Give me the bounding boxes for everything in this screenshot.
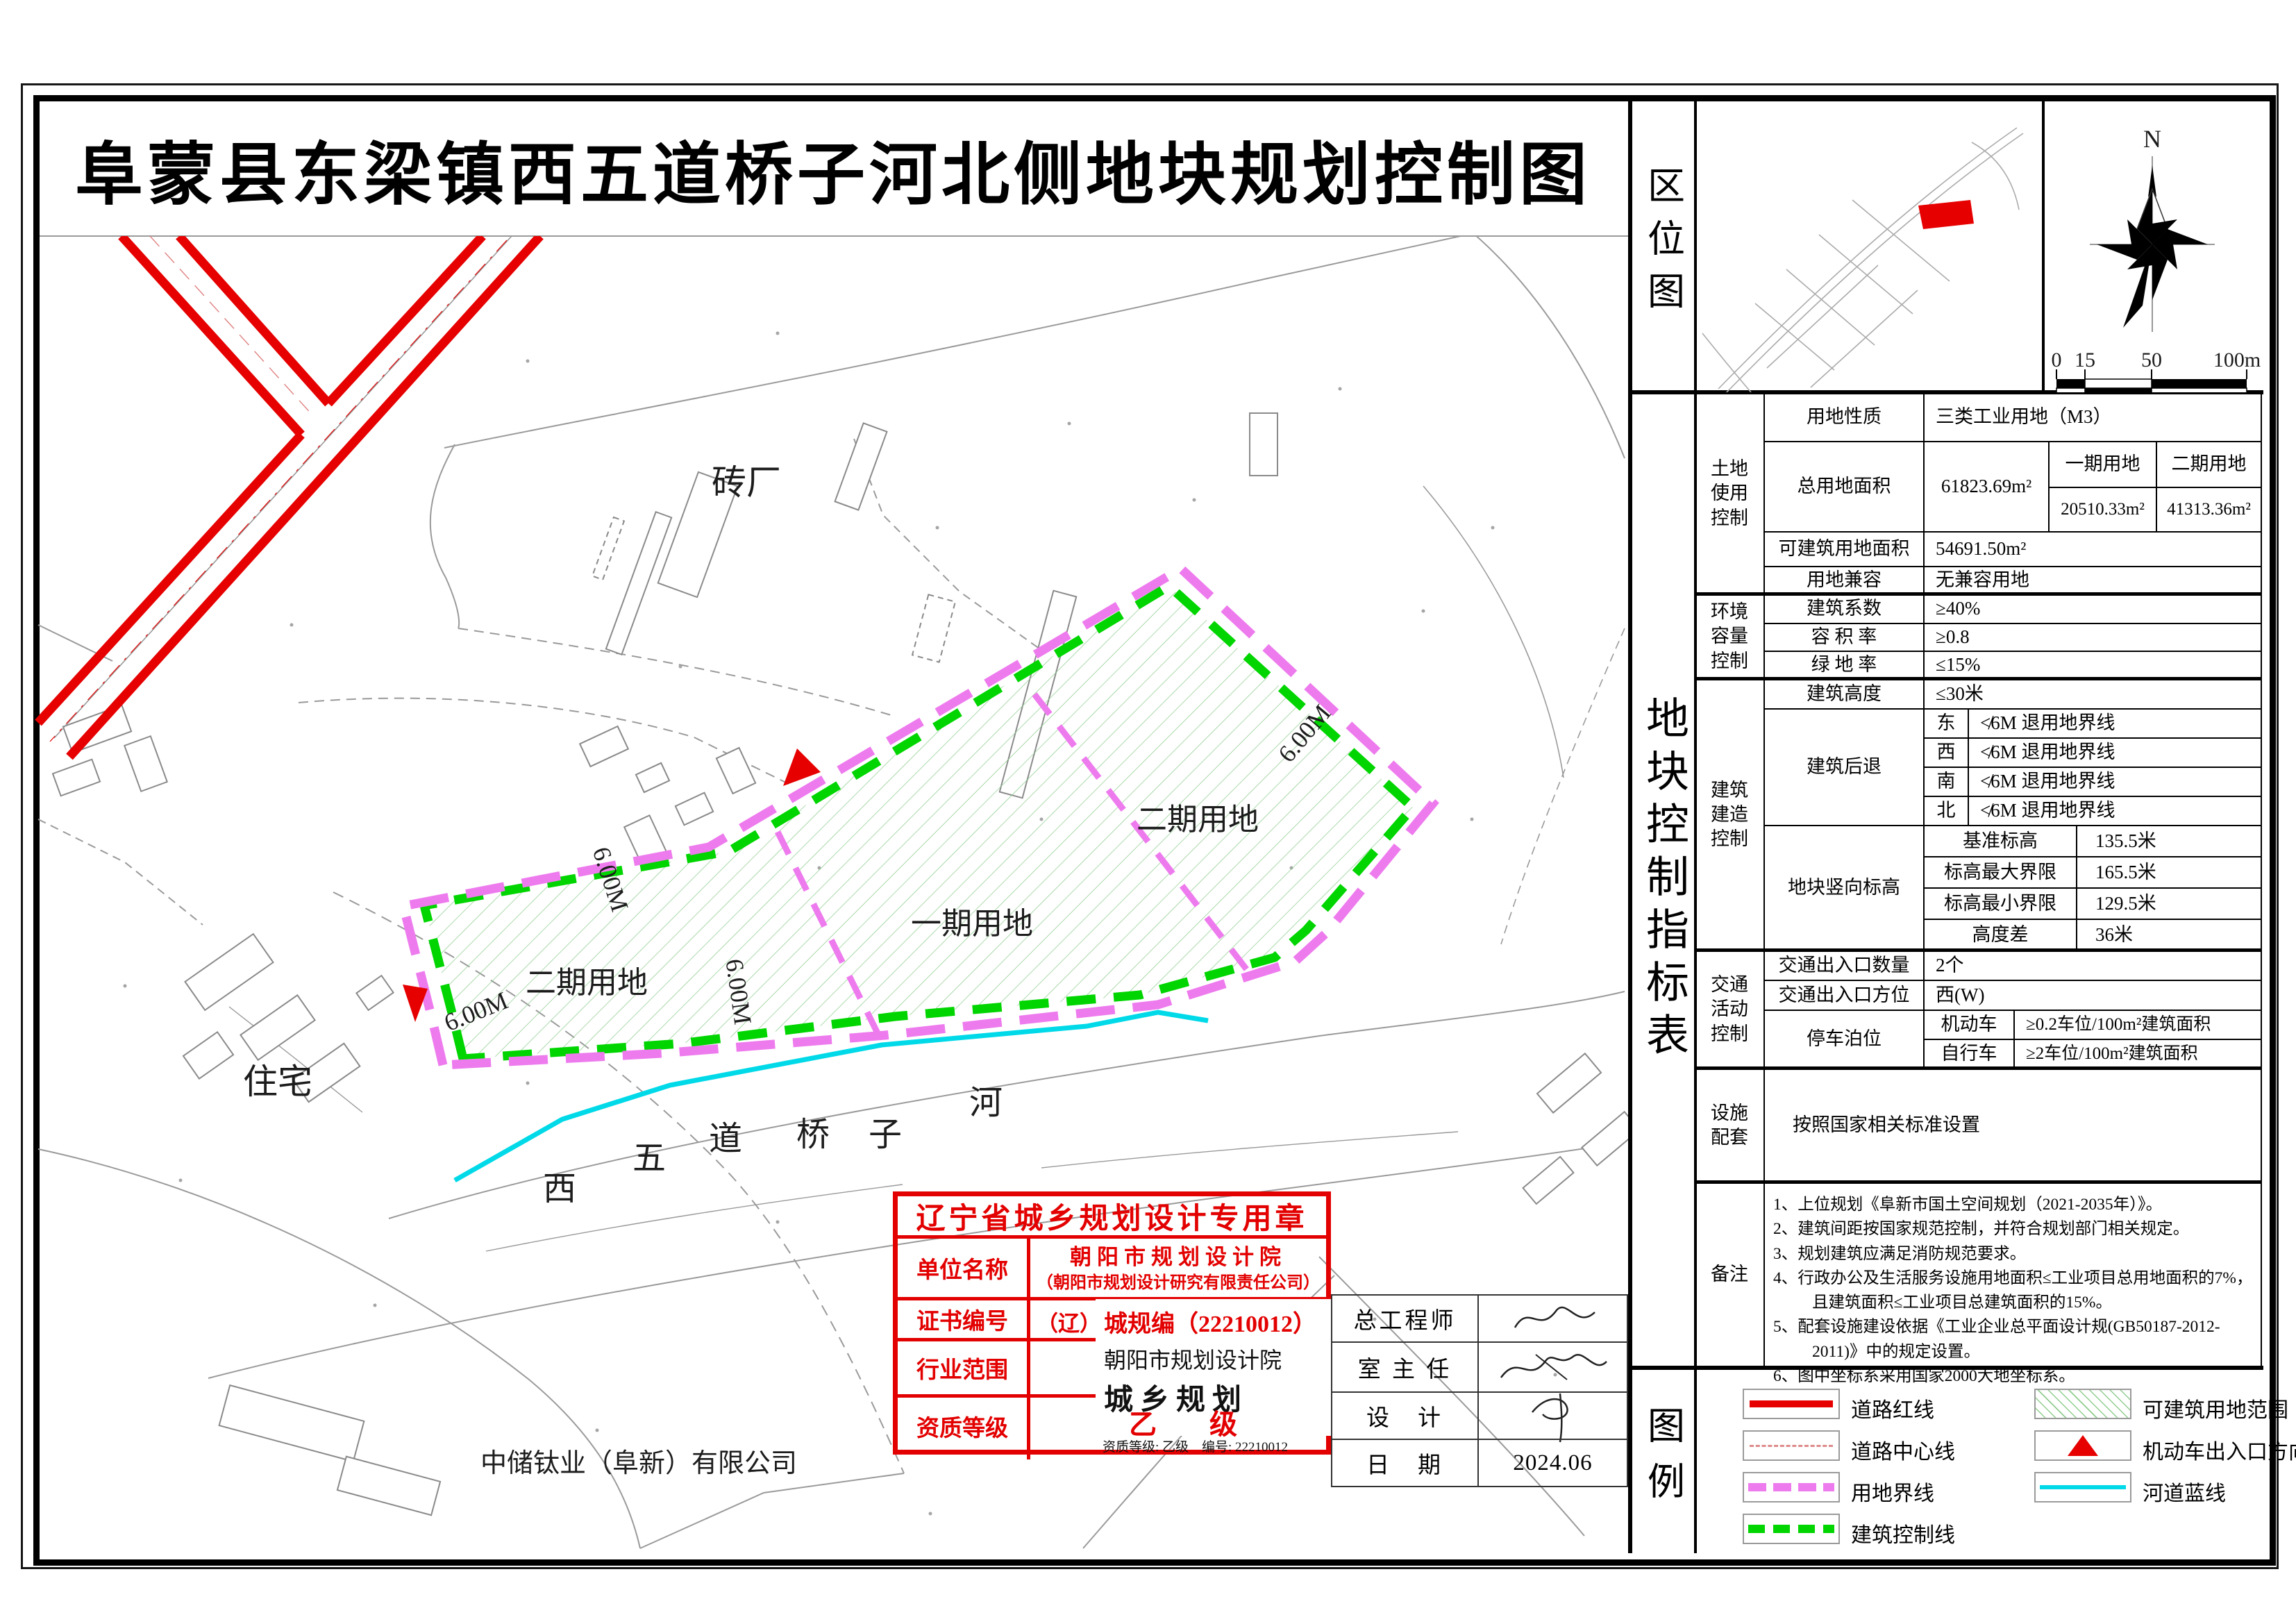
signature-1 bbox=[1501, 1300, 1605, 1337]
attr-entry-count: 交通出入口数量 bbox=[1763, 950, 1925, 981]
group-notes: 备注 bbox=[1694, 1182, 1765, 1368]
phase1-label: 一期用地 bbox=[911, 907, 1033, 941]
location-parcel bbox=[1918, 200, 1974, 229]
value-phase1: 20510.33m² bbox=[2048, 487, 2157, 533]
note-2: 2、建筑间距按国家规范控制，并符合规划部门相关规定。 bbox=[1773, 1217, 2254, 1241]
chief-engineer-signature bbox=[1477, 1294, 1628, 1343]
date-value: 2024.06 bbox=[1477, 1439, 1628, 1487]
value-entry-dir: 西(W) bbox=[1923, 980, 2262, 1011]
table-thick-line-5 bbox=[1694, 1180, 2262, 1184]
note-3: 3、规划建筑应满足消防规范要求。 bbox=[1773, 1242, 2254, 1266]
setback-dir-west: 西 bbox=[1923, 737, 1969, 768]
stamp-grade-value: 乙 级 bbox=[1106, 1402, 1273, 1442]
elev-value-max: 165.5米 bbox=[2076, 856, 2262, 889]
attr-nature: 用地性质 bbox=[1763, 392, 1925, 442]
svg-text:五: 五 bbox=[632, 1140, 666, 1177]
elev-label-max: 标高最大界限 bbox=[1923, 856, 2077, 889]
value-total-area: 61823.69m² bbox=[1923, 441, 2050, 533]
legend-swatch-road-red bbox=[1743, 1389, 1840, 1419]
value-facility: 按照国家相关标准设置 bbox=[1763, 1068, 2262, 1183]
setback-dir-east: 东 bbox=[1923, 708, 1969, 739]
attr-coeff: 建筑系数 bbox=[1763, 594, 1925, 624]
note-6: 6、图中坐标系采用国家2000大地坐标系。 bbox=[1773, 1364, 2254, 1389]
phase2-east-label: 二期用地 bbox=[1137, 803, 1259, 837]
studio-director-label: 室 主 任 bbox=[1331, 1341, 1479, 1393]
legend-swatch-buildable bbox=[2034, 1389, 2131, 1419]
legend-label-road-red: 道路红线 bbox=[1851, 1393, 1934, 1423]
road-center-lines bbox=[50, 236, 512, 742]
note-5: 5、配套设施建设依据《工业企业总平面设计规(GB50187-2012-2011)… bbox=[1773, 1315, 2254, 1364]
legend-label-land-boundary: 用地界线 bbox=[1851, 1476, 1934, 1507]
svg-text:道: 道 bbox=[709, 1121, 742, 1157]
header-phase2: 二期用地 bbox=[2156, 441, 2262, 488]
elev-value-datum: 135.5米 bbox=[2076, 825, 2262, 857]
legend-swatch-river bbox=[2034, 1472, 2131, 1502]
attr-total-area: 总用地面积 bbox=[1763, 441, 1925, 533]
north-arrow bbox=[2090, 156, 2215, 332]
legend-label-buildable: 可建筑用地范围 bbox=[2143, 1393, 2288, 1423]
overlay-scope-unit: 朝阳市规划设计院 bbox=[1096, 1339, 1331, 1375]
attr-entry-dir: 交通出入口方位 bbox=[1763, 980, 1925, 1011]
value-height: ≤30米 bbox=[1923, 678, 2262, 710]
elev-label-datum: 基准标高 bbox=[1923, 825, 2077, 857]
elev-value-min: 129.5米 bbox=[2076, 887, 2262, 920]
svg-text:河: 河 bbox=[969, 1085, 1003, 1121]
stamp-grade-label: 资质等级 bbox=[898, 1398, 1027, 1455]
indicator-table-label: 地块控制指标表 bbox=[1631, 394, 1695, 1366]
legend-label-river: 河道蓝线 bbox=[2143, 1476, 2226, 1507]
parking-label-bicycle: 自行车 bbox=[1923, 1039, 2015, 1069]
north-label: N bbox=[2143, 125, 2161, 153]
scale-bar: 0 15 50 100m bbox=[2052, 349, 2261, 392]
svg-text:100m: 100m bbox=[2213, 349, 2261, 371]
elev-label-min: 标高最小界限 bbox=[1923, 887, 2077, 920]
svg-text:子: 子 bbox=[869, 1116, 902, 1153]
legend-label-center-line: 道路中心线 bbox=[1851, 1434, 1955, 1465]
legend-swatch-land-boundary bbox=[1743, 1472, 1840, 1502]
elev-value-diff: 36米 bbox=[2076, 919, 2262, 951]
legend-label-entrance: 机动车出入口方向 bbox=[2143, 1434, 2296, 1465]
setback-value-north: ≮6M 退用地界线 bbox=[1968, 796, 2262, 826]
note-4: 4、行政办公及生活服务设施用地面积≤工业项目总用地面积的7%，且建筑面积≤工业项… bbox=[1773, 1266, 2254, 1316]
legend-swatch-entrance bbox=[2034, 1430, 2131, 1461]
value-entry-count: 2个 bbox=[1923, 950, 2262, 981]
value-phase2: 41313.36m² bbox=[2156, 487, 2262, 533]
notes-cell: 1、上位规划《阜新市国土空间规划（2021-2035年）》。 2、建筑间距按国家… bbox=[1763, 1182, 2262, 1368]
phase2-west-label: 二期用地 bbox=[526, 966, 648, 1000]
value-compat: 无兼容用地 bbox=[1923, 566, 2262, 595]
attr-setback: 建筑后退 bbox=[1763, 708, 1925, 826]
compass-panel: N 0 15 50 100m bbox=[2045, 97, 2262, 392]
group-environment: 环境 容量 控制 bbox=[1694, 594, 1765, 680]
setback-value-east: ≮6M 退用地界线 bbox=[1968, 708, 2262, 739]
brick-factory-label: 砖厂 bbox=[712, 463, 781, 502]
overlay-cert-value: 城规编（22210012） bbox=[1096, 1299, 1331, 1339]
attr-green: 绿 地 率 bbox=[1763, 651, 1925, 680]
group-traffic: 交通 活动 控制 bbox=[1694, 950, 1765, 1069]
date-label: 日 期 bbox=[1331, 1439, 1479, 1487]
header-phase1: 一期用地 bbox=[2048, 441, 2157, 488]
setback-dir-north: 北 bbox=[1923, 796, 1969, 826]
signature-3 bbox=[1511, 1388, 1595, 1443]
signature-2 bbox=[1494, 1346, 1612, 1388]
group-building: 建筑 建造 控制 bbox=[1694, 678, 1765, 951]
attr-compat: 用地兼容 bbox=[1763, 566, 1925, 595]
value-far: ≥0.8 bbox=[1923, 623, 2262, 652]
svg-text:15: 15 bbox=[2075, 349, 2095, 371]
stamp-unit-value: 朝阳市规划设计院 bbox=[1030, 1239, 1326, 1271]
stamp-cert-label: 证书编号 bbox=[898, 1300, 1027, 1338]
parking-value-bicycle: ≥2车位/100m²建筑面积 bbox=[2013, 1039, 2262, 1069]
residential-label: 住宅 bbox=[243, 1062, 312, 1101]
legend-swatch-center-line bbox=[1743, 1430, 1840, 1461]
setback-value-south: ≮6M 退用地界线 bbox=[1968, 767, 2262, 797]
location-roads bbox=[1702, 128, 2023, 392]
page-title: 阜蒙县东梁镇西五道桥子河北侧地块规划控制图 bbox=[42, 104, 1625, 233]
legend-panel-label: 图例 bbox=[1631, 1370, 1695, 1552]
legend-label-control-line: 建筑控制线 bbox=[1851, 1518, 1955, 1548]
table-thick-line-2 bbox=[1694, 677, 2262, 680]
stamp-unit-label: 单位名称 bbox=[898, 1239, 1027, 1297]
stamp-unit-value2: （朝阳市规划设计研究有限责任公司） bbox=[1030, 1269, 1326, 1293]
attr-buildable-area: 可建筑用地面积 bbox=[1763, 531, 1925, 567]
location-map bbox=[1697, 97, 2042, 392]
parking-value-motor: ≥0.2车位/100m²建筑面积 bbox=[2013, 1010, 2262, 1040]
designer-label: 设 计 bbox=[1331, 1391, 1479, 1440]
attr-far: 容 积 率 bbox=[1763, 623, 1925, 652]
value-coeff: ≥40% bbox=[1923, 594, 2262, 624]
stamp-scope-label: 行业范围 bbox=[898, 1341, 1027, 1394]
group-land-use: 土地 使用 控制 bbox=[1694, 392, 1765, 595]
attr-parking: 停车泊位 bbox=[1763, 1010, 1925, 1069]
table-thick-line-4 bbox=[1694, 1066, 2262, 1070]
value-green: ≤15% bbox=[1923, 651, 2262, 680]
stamp-title: 辽宁省城乡规划设计专用章 bbox=[898, 1196, 1326, 1235]
attr-elevation: 地块竖向标高 bbox=[1763, 825, 1925, 951]
svg-text:50: 50 bbox=[2141, 349, 2162, 371]
setback-dir-south: 南 bbox=[1923, 767, 1969, 797]
stamp-cert-prefix: （辽） bbox=[1037, 1306, 1101, 1337]
designer-signature bbox=[1477, 1391, 1628, 1440]
table-thick-line-1 bbox=[1694, 592, 2262, 596]
value-buildable: 54691.50m² bbox=[1923, 531, 2262, 567]
attr-height: 建筑高度 bbox=[1763, 678, 1925, 710]
svg-text:西: 西 bbox=[543, 1171, 576, 1207]
legend-swatch-control-line bbox=[1743, 1514, 1840, 1544]
setback-value-west: ≮6M 退用地界线 bbox=[1968, 737, 2262, 768]
company-label: 中储钛业（阜新）有限公司 bbox=[480, 1449, 797, 1478]
elev-label-diff: 高度差 bbox=[1923, 919, 2077, 951]
plan-sheet: { "title": "阜蒙县东梁镇西五道桥子河北侧地块规划控制图", "loc… bbox=[0, 0, 2296, 1624]
studio-director-signature bbox=[1477, 1341, 1628, 1393]
chief-engineer-label: 总工程师 bbox=[1331, 1294, 1479, 1343]
parking-label-motor: 机动车 bbox=[1923, 1010, 2015, 1040]
road-red-lines bbox=[38, 236, 540, 757]
value-nature: 三类工业用地（M3） bbox=[1923, 392, 2262, 442]
svg-text:0: 0 bbox=[2052, 349, 2062, 371]
table-thick-line-3 bbox=[1694, 948, 2262, 952]
location-panel-label: 区位图 bbox=[1631, 97, 1695, 392]
svg-text:桥: 桥 bbox=[796, 1116, 830, 1153]
group-facility: 设施 配套 bbox=[1694, 1068, 1765, 1183]
note-1: 1、上位规划《阜新市国土空间规划（2021-2035年）》。 bbox=[1773, 1193, 2254, 1217]
